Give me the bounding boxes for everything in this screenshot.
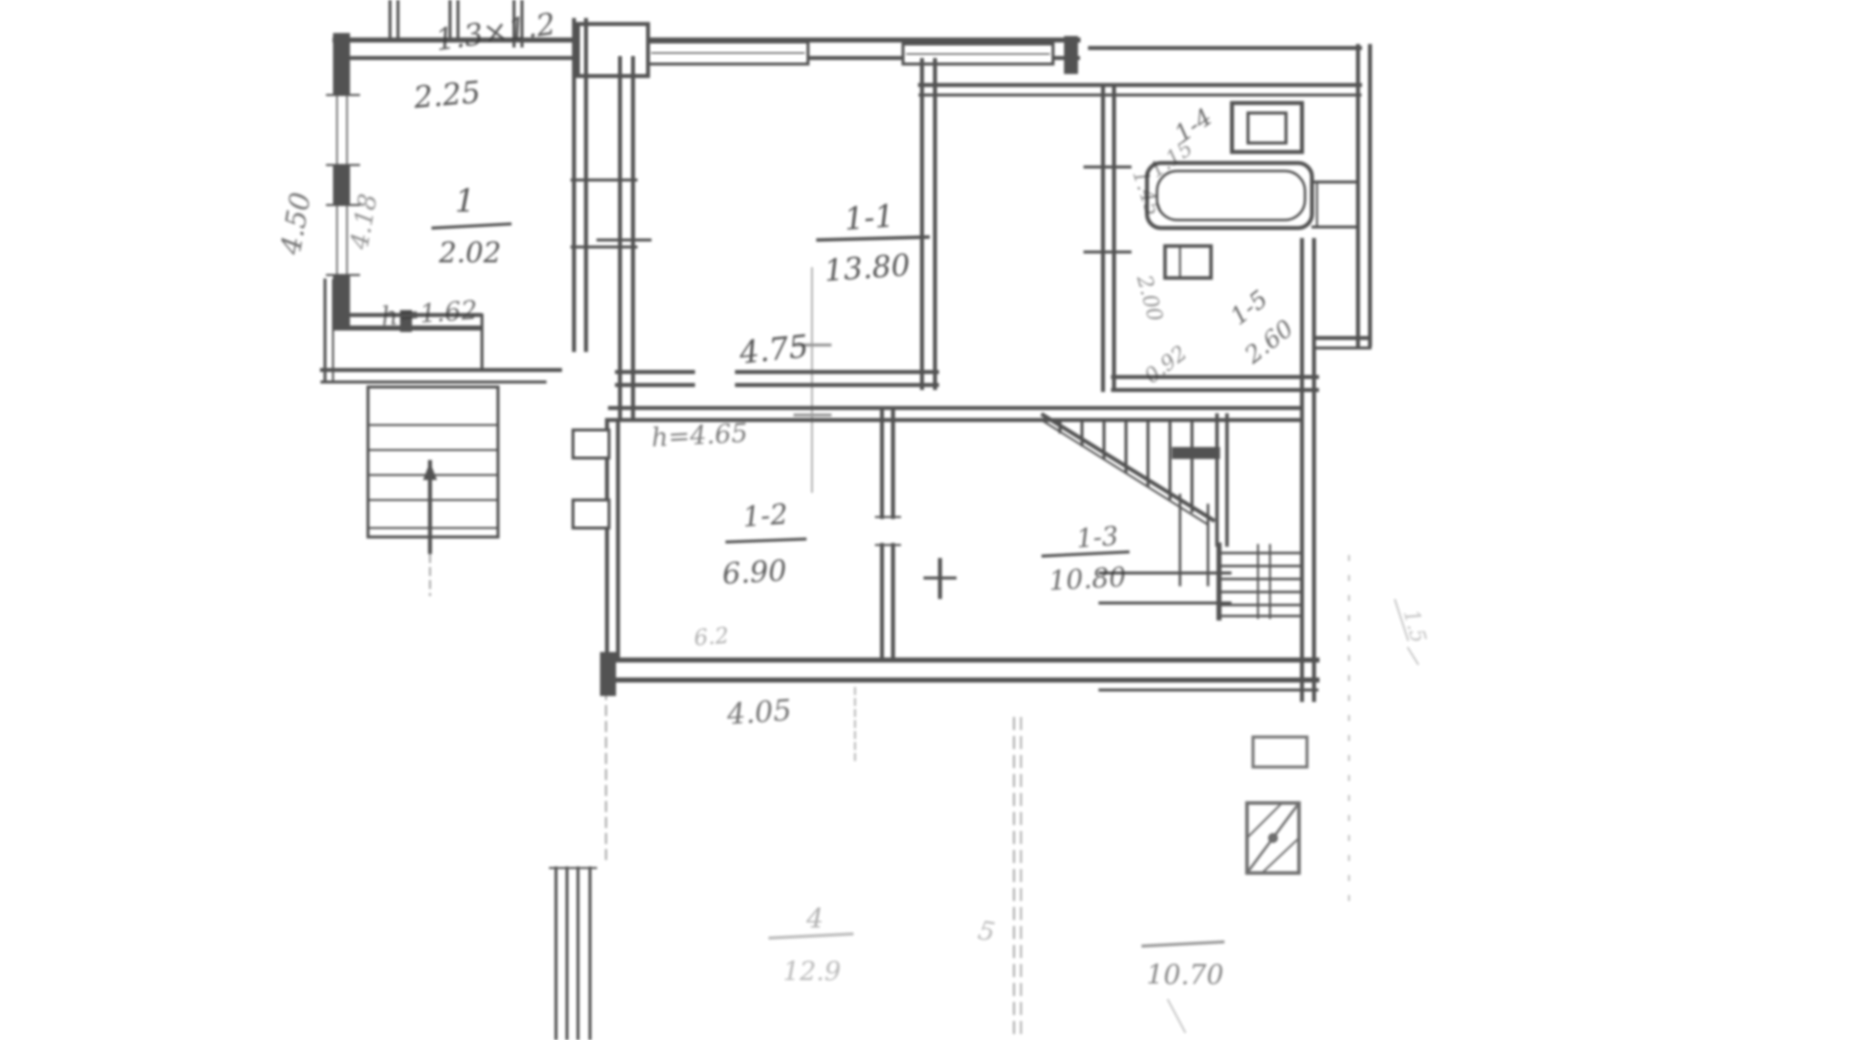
- scanned-floor-plan-page: 1.3×1.2 2.25 4.50 4.18 1 2.02 h=1.62 1-1…: [0, 0, 1850, 1040]
- pilaster-b: [573, 500, 609, 528]
- left-exterior-wall: [327, 33, 359, 330]
- stair-landing-mark: [1172, 447, 1220, 459]
- dim-living-width: 4.75: [737, 329, 810, 372]
- dim-room2-note: h=4.65: [651, 419, 749, 454]
- room-living-area: 13.80: [823, 248, 911, 289]
- ladder: [1219, 545, 1302, 618]
- yard-area: 10.70: [1146, 960, 1223, 991]
- kitchen-number: 1-5: [1225, 285, 1273, 331]
- floor-plan-drawing: 1.3×1.2 2.25 4.50 4.18 1 2.02 h=1.62 1-1…: [0, 0, 1850, 1040]
- dim-cross-mark: [925, 560, 955, 597]
- room-hall-number: 1: [455, 182, 475, 220]
- yard-lines: [550, 556, 1418, 1040]
- kitchen-dim-diag: 0.92: [1140, 341, 1192, 389]
- stair-hall-area: 10.80: [1048, 562, 1127, 597]
- scan-blur-layer: 1.3×1.2 2.25 4.50 4.18 1 2.02 h=1.62 1-1…: [0, 0, 1850, 1040]
- dim-hall-left-inner: 4.18: [344, 192, 382, 253]
- dim-right-margin: 1.5: [1399, 607, 1431, 645]
- dim-room2-small: 6.2: [693, 624, 730, 652]
- terrace-number: 4: [805, 904, 823, 935]
- room-living-number: 1-1: [843, 198, 895, 237]
- terrace-area: 12.9: [783, 957, 841, 987]
- dim-chimney: 1.3×1.2: [434, 7, 558, 58]
- yard-box: [1253, 737, 1307, 767]
- dim-hall-left-outer: 4.50: [274, 190, 317, 258]
- stair-hall-number: 1-3: [1076, 522, 1120, 555]
- room2-area: 6.90: [721, 553, 787, 590]
- wall-niche: [1313, 182, 1358, 227]
- pilaster-a: [573, 430, 609, 458]
- handwritten-labels: 1.3×1.2 2.25 4.50 4.18 1 2.02 h=1.62 1-1…: [274, 7, 1431, 991]
- fence-column: [550, 868, 596, 1040]
- hatched-box: [1247, 803, 1299, 873]
- stove: [1165, 246, 1211, 278]
- chimney-box: [578, 24, 648, 76]
- room2-number: 1-2: [742, 497, 789, 533]
- section-line: [795, 268, 830, 492]
- dim-band-width: 4.05: [725, 693, 793, 731]
- kitchen-dim-vert: 2.00: [1132, 272, 1168, 324]
- dim-hall-width: 2.25: [411, 75, 482, 116]
- sink: [1232, 103, 1302, 152]
- room-hall-area: 2.02: [438, 236, 501, 269]
- yard-mark: 5: [976, 916, 998, 948]
- hall-walls: [335, 20, 636, 420]
